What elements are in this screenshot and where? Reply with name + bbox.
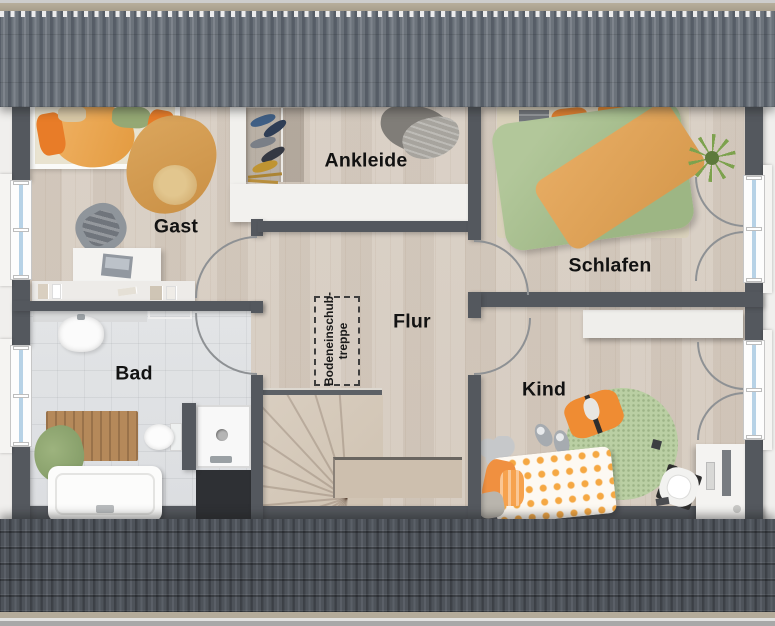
- wall-left-top: [12, 107, 30, 180]
- stair-handrail: [263, 388, 382, 395]
- room-label-gast: Gast: [154, 216, 198, 239]
- window-gast: [10, 180, 32, 280]
- room-label-schlafen: Schlafen: [569, 255, 652, 278]
- wall-left-mid: [12, 280, 30, 345]
- round-jute-rug: [153, 165, 197, 205]
- room-label-ankleide: Ankleide: [325, 150, 408, 173]
- window-schlafen: [743, 175, 765, 283]
- wall-bad-flur: [251, 375, 263, 519]
- attic-hatch-outline: Bodeneinschub- treppe: [314, 296, 360, 386]
- roof-top: [0, 0, 775, 107]
- laptop: [101, 253, 133, 278]
- roof-bottom: [0, 519, 775, 626]
- wall-schlafen-west: [468, 107, 481, 240]
- tan-pillow: [58, 106, 86, 122]
- window-kind: [743, 340, 765, 440]
- potted-plant: [688, 134, 736, 182]
- shower-fixture: [210, 456, 232, 463]
- attic-hatch-label: Bodeneinschub- treppe: [323, 296, 351, 386]
- wall-gast-bad: [12, 301, 263, 311]
- toilet: [144, 424, 174, 450]
- books: [166, 286, 176, 300]
- bathtub: [48, 466, 162, 522]
- wall-right-bottom: [745, 440, 763, 519]
- closet-divider: [230, 107, 246, 185]
- computer-monitor: [722, 450, 731, 496]
- keyboard: [706, 462, 715, 490]
- wall-right-top: [745, 107, 763, 175]
- floor-plan: Gast Ankleide Schlafen Flur Bad Kind Bod…: [0, 0, 775, 626]
- mouse: [733, 505, 741, 513]
- shower-drain: [216, 429, 228, 441]
- stairwell-opening: [333, 457, 462, 498]
- room-label-bad: Bad: [115, 363, 152, 386]
- wall-left-bottom: [12, 447, 30, 519]
- towel-rail: [148, 310, 192, 319]
- shower-wall: [182, 403, 196, 470]
- wardrobe: [230, 184, 468, 222]
- exterior-strip-left: [0, 107, 12, 519]
- window-bad: [10, 345, 32, 447]
- room-label-kind: Kind: [522, 379, 566, 402]
- room-label-flur: Flur: [393, 311, 431, 334]
- washbasin: [58, 316, 104, 352]
- books: [52, 284, 61, 299]
- books: [150, 286, 162, 300]
- books: [38, 284, 48, 299]
- dark-closet: [196, 470, 251, 519]
- kind-sideboard: [583, 310, 743, 338]
- wall-bad-flur-post: [251, 301, 263, 313]
- wall-ankleide-south: [258, 221, 468, 232]
- wall-kind-door-post: [468, 292, 481, 318]
- wall-flur-kind: [468, 375, 481, 519]
- tub-faucet: [96, 505, 114, 513]
